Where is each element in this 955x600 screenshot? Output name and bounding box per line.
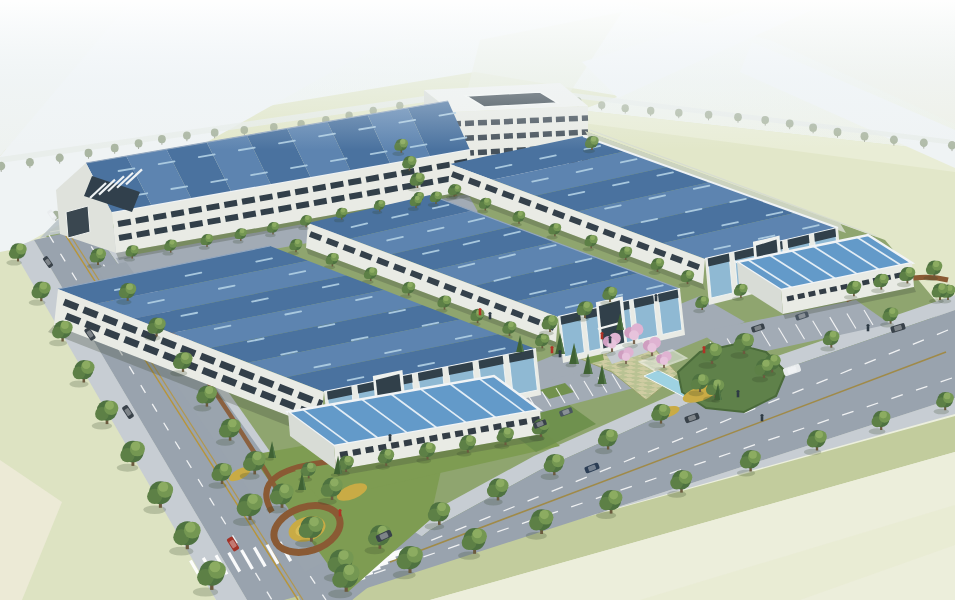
industrial-park-scene	[0, 0, 955, 600]
pedestrian	[600, 332, 603, 339]
pedestrian	[608, 336, 611, 343]
pedestrian	[760, 414, 763, 421]
horizon-haze	[0, 0, 955, 150]
pedestrian	[654, 294, 657, 301]
pedestrian	[488, 312, 491, 319]
pedestrian	[388, 434, 391, 441]
pedestrian	[338, 509, 341, 516]
hall1-entrance-door	[66, 206, 90, 238]
pedestrian	[702, 346, 705, 353]
pedestrian	[478, 308, 481, 315]
pedestrian	[866, 324, 869, 331]
pedestrian	[558, 350, 561, 357]
aerial-rendering	[0, 0, 955, 600]
pedestrian	[736, 390, 739, 397]
pedestrian	[550, 346, 553, 353]
